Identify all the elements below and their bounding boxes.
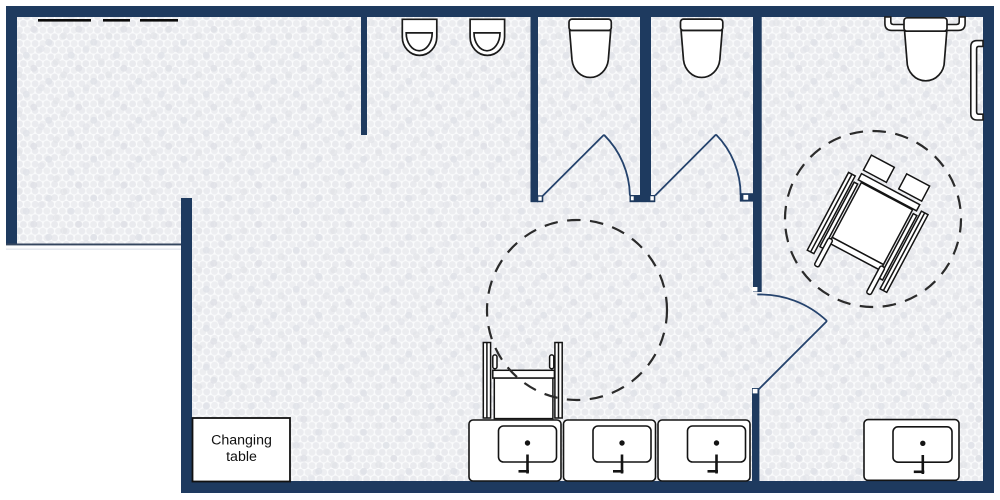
svg-text:Changing: Changing (211, 433, 272, 449)
svg-text:table: table (226, 449, 257, 465)
